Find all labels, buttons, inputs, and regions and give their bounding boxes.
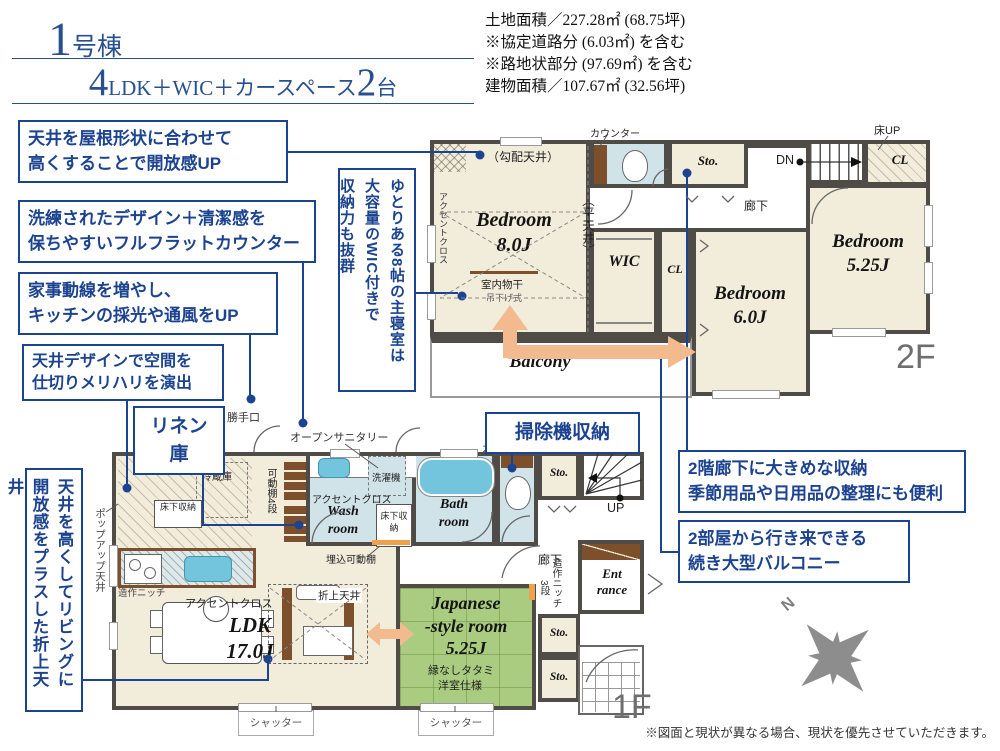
callout-hall-storage: 2階廊下に大きめな収納 季節用品や日用品の整理にも便利 [678, 450, 966, 513]
wall-strip-2f [748, 140, 810, 148]
window [427, 292, 436, 320]
drying-type-label: 吊下げ式 [486, 291, 522, 304]
flagpole-lot: ※路地状部分 (97.69㎡) を含む [485, 54, 693, 76]
accent-cloth-2f-label: アクセントクロス [437, 192, 450, 264]
stairs-dn-label: DN [776, 153, 794, 167]
stairs-up-1f [580, 452, 644, 500]
window [238, 703, 312, 712]
callout-big-balcony: 2部屋から行き来できる 続き大型バルコニー [678, 520, 910, 583]
stove-icon [124, 554, 162, 584]
bedroom8-label: Bedroom 8.0J [448, 208, 580, 258]
storage-a-label: Sto. [541, 626, 577, 640]
floorplan-flyer: 1号棟 4LDK＋WIC＋カースペース2台 土地面積／227.28㎡ (68.7… [0, 0, 1000, 751]
slope-ceiling-label: （勾配天井） [487, 148, 559, 165]
site-info: 土地面積／227.28㎡ (68.75坪) ※協定道路分 (6.03㎡) を含む… [485, 10, 693, 98]
balcony-label: Balcony [492, 350, 588, 373]
callout-linen-closet: リネン庫 [133, 406, 225, 475]
plan-cars-unit: 台 [376, 76, 397, 100]
land-area: 土地面積／227.28㎡ (68.75坪) [485, 10, 693, 32]
coffered-label: 折上天井 [316, 588, 362, 603]
tatami-note1: 縁なしタタミ [428, 662, 494, 678]
window [109, 545, 118, 587]
indoor-drying-label: 室内物干 [481, 277, 523, 292]
building-area: 建物面積／107.67㎡ (32.56坪) [485, 76, 693, 98]
compass-rose-icon [773, 596, 897, 720]
wic-rail-bottom [596, 322, 652, 324]
plan-rooms-text: LDK＋WIC＋カースペース [108, 76, 356, 100]
built-in-shelf-strip [372, 540, 410, 545]
closet-top-label: CL [878, 152, 922, 168]
plan-rooms-number: 4 [89, 61, 109, 104]
compass-north-label: N [779, 594, 799, 615]
ldk-label: LDK 17.0J [205, 612, 295, 665]
chair [150, 636, 163, 654]
bedroom8-corner-hatch [434, 144, 466, 172]
corridor-2f-label: 廊下 [744, 197, 768, 214]
building-title: 1号棟 [48, 12, 122, 67]
room-wic [590, 228, 658, 336]
shutter-label-2: シャッター [418, 710, 494, 736]
building-suffix: 号棟 [72, 34, 122, 61]
window [500, 137, 542, 146]
window [832, 328, 886, 337]
callout-housework-line: 家事動線を増やし、 キッチンの採光や通風をUP [18, 272, 278, 335]
niche-kitchen-label: 造作ニッチ [118, 585, 166, 599]
movable-shelf-top [284, 460, 306, 500]
building-number: 1 [48, 13, 72, 66]
room-closet-mid-2f [658, 228, 692, 336]
callout-flat-counter: 洗練されたデザイン＋清潔感を 保ちやすいフルフラットカウンター [18, 200, 316, 263]
drying-bar [470, 271, 538, 274]
kitchen-sink-icon [184, 556, 232, 582]
window [109, 622, 118, 650]
callout-vacuum-storage: 掃除機収納 [485, 412, 640, 454]
storage-2f-label: Sto. [676, 153, 740, 169]
open-sanitary-label: オープンサニタリー [290, 429, 388, 445]
movable-shelf-label: 可動棚4段 [263, 468, 278, 514]
bathroom-label: Bath room [424, 496, 484, 531]
washer-label: 洗濯機 [372, 470, 401, 484]
floor2-tag: 2F [896, 338, 936, 377]
callout-master-bedroom: ゆとりある8帖の主寝室は 大容量のWIC付きで 収納力も抜群 [338, 168, 416, 392]
japanese-room-label: Japanese -style room 5.25J [400, 592, 532, 660]
stairs-up-label: UP [607, 501, 624, 515]
window [427, 225, 436, 263]
toilet1f-counter [501, 456, 533, 468]
toilet1f-bowl-icon [505, 476, 531, 510]
callout-ceiling-design: 天井デザインで空間を 仕切りメリハリを演出 [22, 344, 224, 401]
wash-basin-icon [318, 458, 350, 478]
window [712, 390, 780, 399]
window [330, 449, 360, 458]
counter-2f-label: カウンター [590, 125, 640, 140]
wic-label: WIC [592, 252, 656, 272]
vacuum-storage-label: Sto. [542, 466, 576, 480]
chair [150, 610, 163, 628]
stairs-down-2f [806, 140, 866, 184]
disclaimer: ※図面と現状が異なる場合、現状を優先させていただきます。 [600, 722, 994, 741]
floor-up-label: 床UP [874, 122, 900, 138]
agreement-road: ※協定道路分 (6.03㎡) を含む [485, 32, 693, 54]
movable-shelf-bottom [284, 504, 306, 542]
flat-ceiling-label: （平天井） [578, 194, 597, 257]
closet-mid-label: CL [658, 262, 692, 277]
corridor-2f-area [594, 188, 806, 228]
entrance-step [582, 544, 640, 560]
toilet2f-counter [594, 145, 607, 184]
popup-ceiling-label: ポップアップ天井 [93, 508, 108, 592]
wic-rail-top [596, 238, 652, 240]
storage-b-label: Sto. [541, 670, 577, 684]
accent-kitchen-label: アクセントクロス [185, 595, 272, 611]
window [440, 449, 478, 458]
callout-living-ceiling: 天井を高くしてリビングに 開放感をプラスした折上天井 [25, 468, 83, 712]
callout-roof-ceiling: 天井を屋根形状に合わせて 高くすることで開放感UP [18, 120, 288, 183]
washroom-label: Wash room [314, 503, 372, 538]
toilet2f-bowl-icon [622, 150, 648, 182]
underfloor-storage-kitchen: 床下収納 [154, 500, 202, 528]
tatami-note2: 洋室仕様 [438, 677, 482, 693]
built-in-shelf-label: 埋込可動棚 [326, 551, 376, 566]
back-door-label: 勝手口 [227, 409, 260, 425]
bathtub-icon [418, 458, 494, 496]
window [420, 703, 494, 712]
bedroom525-label: Bedroom 5.25J [808, 230, 928, 278]
plan-cars-number: 2 [357, 61, 377, 104]
plan-title: 4LDK＋WIC＋カースペース2台 [12, 60, 474, 105]
sofa-table [303, 626, 353, 656]
entrance-label: Ent rance [588, 566, 636, 599]
shutter-label-1: シャッター [238, 710, 314, 736]
bedroom6-label: Bedroom 6.0J [692, 282, 808, 330]
niche-steps-label: 3段 [536, 580, 551, 596]
